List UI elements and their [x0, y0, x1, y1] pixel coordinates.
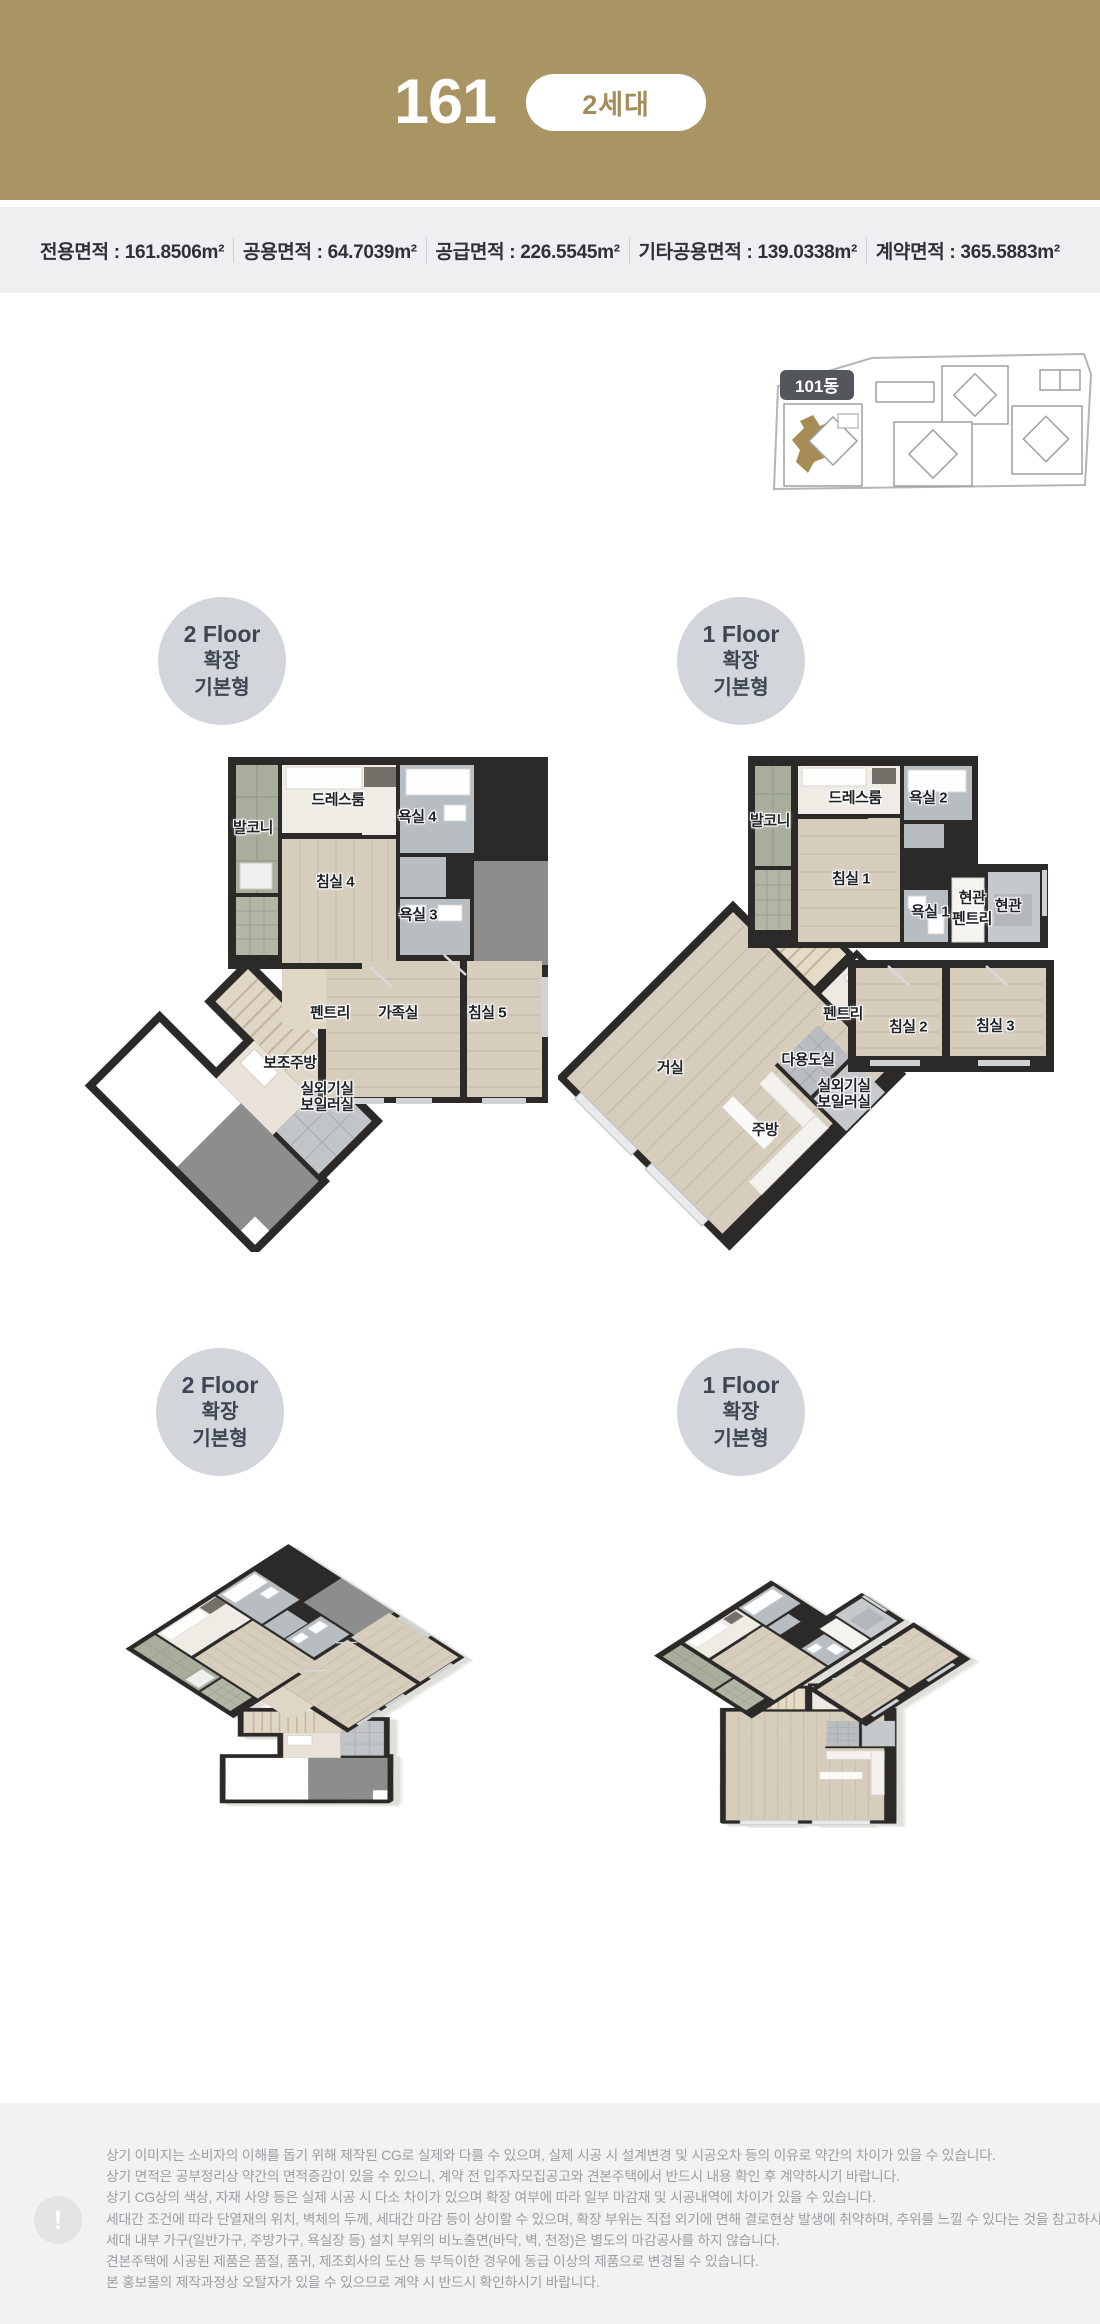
floor-badge-line: 확장	[204, 648, 241, 675]
floor-badge-line: 2 Floor	[184, 621, 261, 648]
room-label-2f: 펜트리	[310, 1002, 350, 1023]
room-label-1f: 주방	[752, 1119, 779, 1140]
room-label-2f: 발코니	[233, 817, 273, 838]
floor-badge-line: 2 Floor	[182, 1372, 259, 1399]
area-item-common: 공용면적 : 64.7039m²	[243, 237, 417, 264]
floor-badge-line: 1 Floor	[703, 1372, 780, 1399]
disclaimer-line: 상기 면적은 공부정리상 약간의 면적증감이 있을 수 있으니, 계약 전 입주…	[106, 2166, 1100, 2187]
floor-badge-line: 기본형	[192, 1426, 247, 1453]
plan-2f-3d	[23, 1462, 543, 1957]
room-label-2f: 가족실	[378, 1002, 418, 1023]
room-label-1f: 다용도실	[781, 1049, 834, 1070]
building-label: 101동	[795, 377, 839, 396]
floor-badge-line: 확장	[723, 1399, 760, 1426]
area-info-bar: 전용면적 : 161.8506m² 공용면적 : 64.7039m² 공급면적 …	[0, 207, 1100, 293]
room-label-1f: 침실 1	[832, 868, 870, 889]
divider	[629, 237, 630, 263]
floor-badge-2f-plan: 2 Floor 확장 기본형	[158, 597, 286, 725]
floor-badge-line: 확장	[202, 1399, 239, 1426]
floor-badge-2f-iso: 2 Floor 확장 기본형	[156, 1348, 284, 1476]
area-item-other-common: 기타공용면적 : 139.0338m²	[638, 237, 857, 264]
room-label-1f: 침실 3	[976, 1015, 1014, 1036]
disclaimer-line: 상기 이미지는 소비자의 이해를 돕기 위해 제작된 CG로 실제와 다를 수 …	[106, 2145, 1100, 2166]
plan-1f-3d	[550, 1450, 1090, 1970]
room-label-1f: 현관	[959, 887, 986, 908]
floor-badge-line: 기본형	[194, 675, 249, 702]
room-label-1f: 거실	[657, 1057, 684, 1078]
room-label-2f: 보조주방	[263, 1052, 316, 1073]
room-label-2f: 욕실 4	[398, 806, 436, 827]
divider	[426, 237, 427, 263]
area-item-exclusive: 전용면적 : 161.8506m²	[40, 237, 224, 264]
plan-1f-container: 발코니 드레스룸 욕실 2 침실 1 욕실 1 현관 펜트리 현관 펜트리 침실…	[558, 742, 1098, 1262]
divider	[233, 237, 234, 263]
room-label-1f: 펜트리	[952, 908, 992, 929]
disclaimer-section: ! 상기 이미지는 소비자의 이해를 돕기 위해 제작된 CG로 실제와 다를 …	[0, 2103, 1100, 2324]
room-label-1f: 침실 2	[889, 1016, 927, 1037]
floor-badge-line: 1 Floor	[703, 621, 780, 648]
household-badge: 2세대	[526, 74, 706, 131]
area-item-contract: 계약면적 : 365.5883m²	[876, 237, 1060, 264]
floor-badge-line: 확장	[723, 648, 760, 675]
room-label-2f: 욕실 3	[399, 904, 437, 925]
unit-type-number: 161	[394, 71, 496, 134]
room-label-1f: 현관	[995, 895, 1022, 916]
site-map: 101동	[754, 344, 1098, 496]
brochure-page: 161 2세대 전용면적 : 161.8506m² 공용면적 : 64.7039…	[0, 0, 1100, 2324]
disclaimer-line: 견본주택에 시공된 제품은 품절, 품귀, 제조회사의 도산 등 부득이한 경우…	[106, 2251, 1100, 2272]
disclaimer-line: 세대 내부 가구(일반가구, 주방가구, 욕실장 등) 설치 부위의 비노출면(…	[106, 2230, 1100, 2251]
room-label-1f: 발코니	[750, 810, 790, 831]
area-item-supply: 공급면적 : 226.5545m²	[436, 237, 620, 264]
floor-badge-1f-plan: 1 Floor 확장 기본형	[677, 597, 805, 725]
plan-2f-container: 드레스룸 발코니 욕실 4 침실 4 욕실 3 펜트리 가족실 침실 5 보조주…	[30, 757, 550, 1252]
room-label-1f: 펜트리	[823, 1003, 863, 1024]
room-label-1f: 욕실 1	[911, 901, 949, 922]
disclaimer-line: 세대간 조건에 따라 단열재의 위치, 벽체의 두께, 세대간 마감 등이 상이…	[106, 2209, 1100, 2230]
room-label-1f: 드레스룸	[828, 787, 881, 808]
divider	[866, 237, 867, 263]
site-map-svg: 101동	[754, 344, 1098, 496]
disclaimer-line: 상기 CG상의 색상, 자재 사양 등은 실제 시공 시 다소 차이가 있으며 …	[106, 2187, 1100, 2208]
plan-1f-3d-svg	[550, 1537, 1090, 1884]
brand-header: 161 2세대	[0, 0, 1100, 200]
room-label-1f: 욕실 2	[909, 787, 947, 808]
disclaimer-lines: 상기 이미지는 소비자의 이해를 돕기 위해 제작된 CG로 실제와 다를 수 …	[106, 2145, 1100, 2293]
room-label-2f: 침실 4	[316, 871, 354, 892]
disclaimer-line: 본 홍보물의 제작과정상 오탈자가 있을 수 있으므로 계약 시 반드시 확인하…	[106, 2272, 1100, 2293]
floor-badge-line: 기본형	[713, 675, 768, 702]
exclamation-icon: !	[34, 2196, 82, 2244]
plan-2f-3d-svg	[25, 1543, 542, 1875]
room-label-2f: 침실 5	[468, 1002, 506, 1023]
household-badge-label: 2세대	[582, 83, 650, 122]
floor-badge-line: 기본형	[713, 1426, 768, 1453]
room-label-2f: 드레스룸	[311, 789, 364, 810]
room-label-1f: 보일러실	[817, 1091, 870, 1112]
room-label-2f: 보일러실	[300, 1094, 353, 1115]
